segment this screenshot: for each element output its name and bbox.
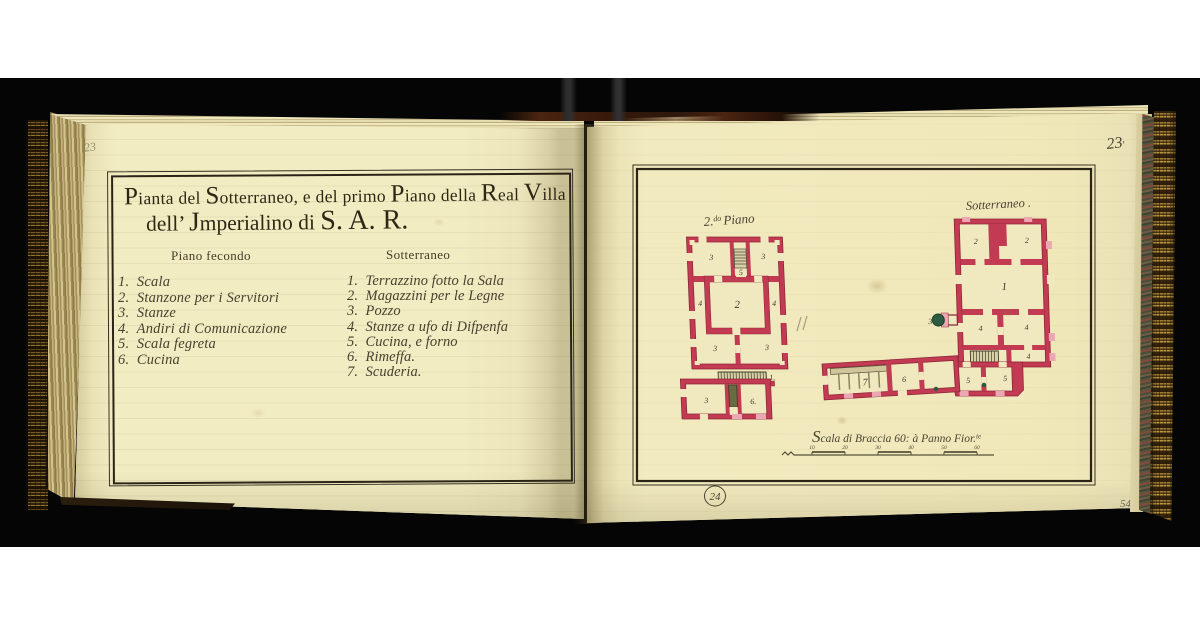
svg-text:6.: 6. xyxy=(750,397,756,406)
svg-text:1: 1 xyxy=(1001,281,1007,293)
svg-text:2.doPiano: 2.doPiano xyxy=(703,210,755,229)
svg-text:3: 3 xyxy=(764,343,769,352)
svg-text:3: 3 xyxy=(703,396,708,405)
svg-text:4: 4 xyxy=(772,299,776,308)
svg-text:5: 5 xyxy=(1003,374,1007,383)
svg-text:4: 4 xyxy=(1024,323,1028,332)
svg-text:30: 30 xyxy=(874,445,881,451)
svg-text:2: 2 xyxy=(974,237,978,246)
svg-text:Scala di Braccia 60: à Panno F: Scala di Braccia 60: à Panno Fior.te xyxy=(812,427,981,446)
svg-text:3: 3 xyxy=(712,344,717,353)
svg-text:2: 2 xyxy=(1025,236,1029,245)
svg-text:3: 3 xyxy=(927,317,932,326)
svg-text:20: 20 xyxy=(842,445,848,451)
svg-text:2: 2 xyxy=(734,299,741,311)
svg-text:3: 3 xyxy=(760,252,765,261)
svg-text:50: 50 xyxy=(941,445,947,451)
svg-text:10: 10 xyxy=(809,445,815,451)
svg-text:40: 40 xyxy=(908,444,914,451)
svg-text:5: 5 xyxy=(739,268,743,277)
svg-text:4: 4 xyxy=(978,324,982,333)
svg-text:24: 24 xyxy=(710,491,722,503)
svg-text:23,: 23, xyxy=(1106,134,1126,153)
svg-text:60: 60 xyxy=(974,445,980,451)
svg-text:Sotterraneo .: Sotterraneo . xyxy=(965,196,1031,213)
svg-text:3: 3 xyxy=(708,253,713,262)
svg-text:1.: 1. xyxy=(769,373,775,382)
svg-text:4: 4 xyxy=(698,299,702,308)
svg-text:4: 4 xyxy=(1026,352,1030,361)
svg-text:54: 54 xyxy=(1120,498,1132,510)
svg-text:6: 6 xyxy=(902,375,907,384)
svg-text:5: 5 xyxy=(966,376,970,385)
